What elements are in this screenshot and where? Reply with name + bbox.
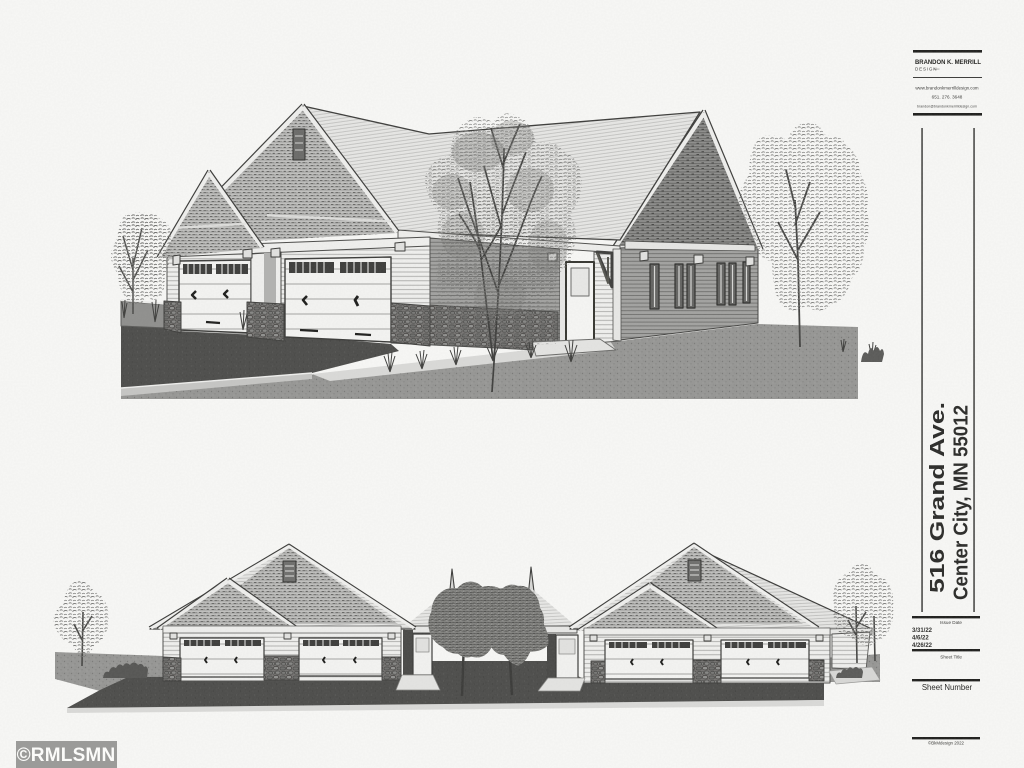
svg-text:©RMLSMN: ©RMLSMN (17, 745, 116, 766)
